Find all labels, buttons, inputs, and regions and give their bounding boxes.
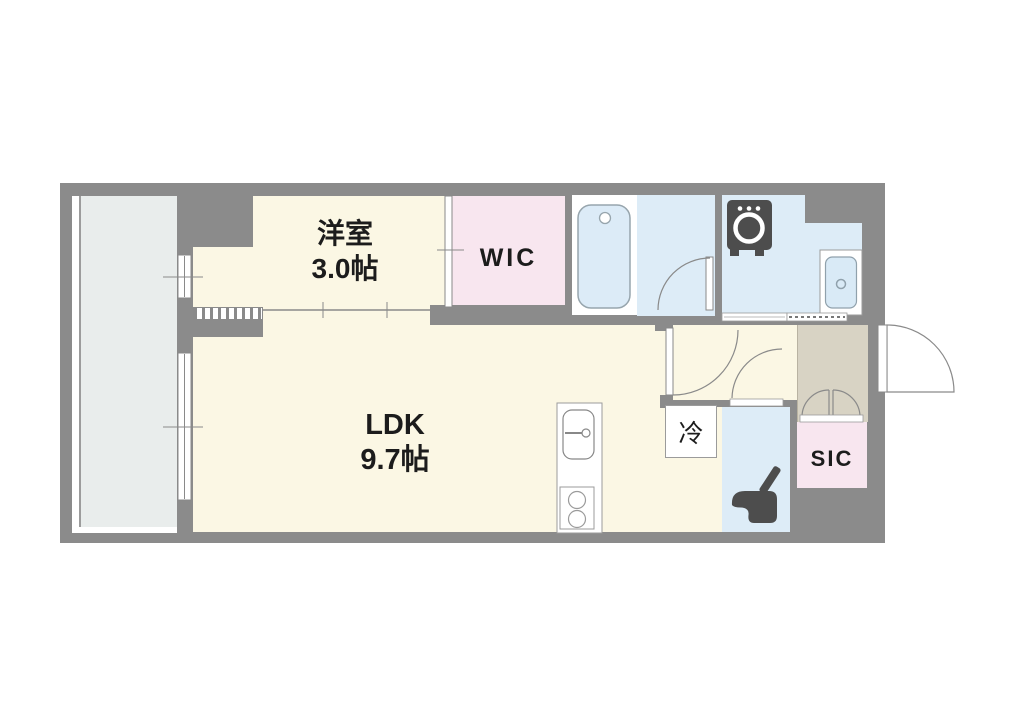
washroom-left — [637, 195, 715, 316]
entrance-hall — [797, 325, 868, 422]
balcony-railing-bottom — [72, 527, 177, 533]
western-room-name: 洋室 — [230, 216, 460, 251]
wic-label: WIC — [452, 241, 565, 276]
wall-below-bathroom — [572, 315, 637, 325]
washroom-basin-area — [805, 223, 862, 313]
ldk-label: LDK 9.7帖 — [300, 408, 490, 478]
floorplan: 冷 — [60, 183, 885, 543]
entrance-door — [878, 325, 954, 392]
hallway-wall-stub-top — [655, 318, 673, 331]
floorplan-page: 冷 — [0, 0, 1024, 724]
balcony — [79, 196, 177, 527]
balcony-railing-left — [72, 196, 79, 533]
refrigerator-space: 冷 — [665, 405, 717, 458]
refrigerator-label: 冷 — [678, 414, 703, 450]
toilet-room — [722, 406, 790, 532]
western-room-label: 洋室 3.0帖 — [230, 216, 460, 286]
bathroom — [572, 195, 637, 315]
hallway — [660, 325, 797, 400]
sic-label: SIC — [797, 441, 867, 476]
wall-below-washroom — [637, 316, 722, 325]
washroom-sliding-door — [722, 313, 787, 321]
partition-wall-stub — [193, 320, 263, 337]
ldk-size: 9.7帖 — [300, 443, 490, 478]
western-room-size: 3.0帖 — [230, 251, 460, 286]
ldk-name: LDK — [300, 408, 490, 443]
wall-below-wic — [430, 305, 572, 325]
partition-hatched-wall — [193, 307, 263, 320]
entrance-washroom-sliding-door — [787, 313, 847, 321]
washroom-laundry — [722, 195, 805, 313]
